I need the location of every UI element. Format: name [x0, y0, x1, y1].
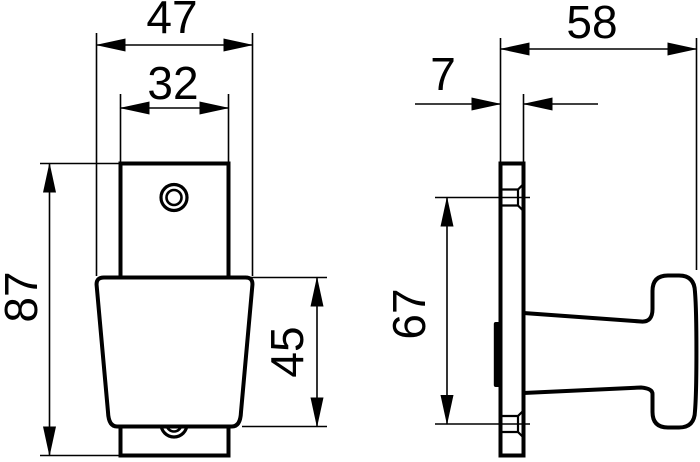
- dim-label-plate-thickness: 7: [430, 48, 456, 100]
- dim-label-total-depth: 58: [566, 0, 617, 48]
- dim-label-knob-top-width: 47: [146, 0, 197, 43]
- knob-side-profile: [524, 276, 697, 428]
- dim-knob-height: 45: [242, 278, 327, 427]
- side-view: [494, 164, 697, 456]
- dim-label-plate-width: 32: [147, 57, 198, 109]
- dim-plate-width: 32: [121, 57, 229, 164]
- dim-label-knob-height: 45: [261, 326, 313, 377]
- dim-label-plate-height: 87: [0, 271, 47, 322]
- front-view: [97, 164, 253, 456]
- rubber-buffer: [494, 322, 501, 387]
- technical-drawing-canvas: 47 32 87 45 58 7 67: [0, 0, 700, 462]
- dimension-drawing: 47 32 87 45 58 7 67: [0, 0, 700, 462]
- dim-total-depth: 58: [501, 0, 697, 270]
- dim-label-hole-spacing: 67: [383, 288, 435, 339]
- knob-body-front: [97, 278, 253, 427]
- dim-plate-thickness: 7: [415, 48, 598, 164]
